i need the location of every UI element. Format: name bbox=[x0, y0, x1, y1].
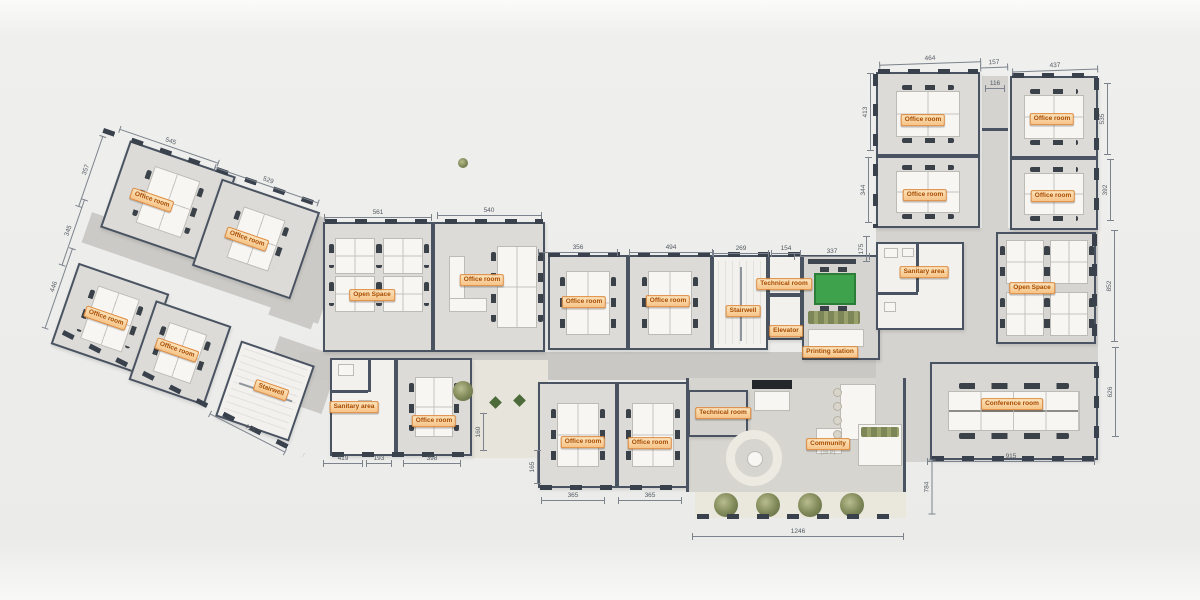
plant-icon bbox=[458, 158, 468, 168]
dimension-line bbox=[927, 461, 1095, 462]
room-label-technical-room: Technical room bbox=[756, 278, 812, 290]
conference-side-floor bbox=[904, 368, 930, 462]
room-label-office-room: Office room bbox=[901, 114, 945, 126]
dimension-561: 561 bbox=[324, 208, 432, 218]
dimension-line bbox=[541, 500, 605, 501]
room-label-office-room: Office room bbox=[628, 437, 672, 449]
dimension-line bbox=[868, 157, 869, 223]
dimension-160: 160 bbox=[474, 413, 484, 451]
dimension-852: 852 bbox=[1105, 230, 1115, 342]
room-label-office-room: Office room bbox=[1031, 190, 1075, 202]
room-conference bbox=[930, 362, 1098, 460]
dimension-value: 852 bbox=[1106, 230, 1113, 342]
dimension-344: 344 bbox=[859, 157, 869, 223]
partition-wall bbox=[368, 360, 371, 392]
mid-corridor-wall bbox=[982, 128, 1008, 131]
desk-cluster bbox=[557, 403, 599, 467]
room-label-office-room: Office room bbox=[460, 274, 504, 286]
room-label-sanitary-area: Sanitary area bbox=[330, 401, 379, 413]
dimension-value: 398 bbox=[403, 455, 461, 462]
dimension-269: 269 bbox=[713, 244, 769, 254]
printer-counter bbox=[808, 329, 864, 347]
dimension-value: 116 bbox=[985, 80, 1005, 87]
room-open-space-center bbox=[323, 222, 433, 352]
room-label-open-space: Open Space bbox=[1009, 282, 1055, 294]
dimension-value: 175 bbox=[858, 236, 865, 262]
tv-screen bbox=[752, 380, 792, 389]
room-label-office-room: Office room bbox=[561, 436, 605, 448]
desk-cluster bbox=[335, 238, 375, 274]
partition-wall bbox=[332, 390, 368, 393]
round-coffee-table bbox=[747, 451, 763, 467]
dimension-165: 165 bbox=[528, 450, 538, 484]
desk-cluster bbox=[383, 238, 423, 274]
reception-desk bbox=[754, 391, 790, 411]
sanitary-fixture bbox=[902, 248, 914, 257]
dimension-line bbox=[618, 500, 682, 501]
dimension-value: 419 bbox=[323, 455, 363, 462]
dimension-line bbox=[1114, 230, 1115, 342]
dimension-value: 413 bbox=[862, 73, 869, 151]
dimension-line bbox=[1110, 159, 1111, 221]
dimension-line bbox=[629, 252, 713, 253]
dimension-value: 784 bbox=[923, 460, 930, 515]
window-strip bbox=[873, 74, 878, 228]
room-sanitary-east bbox=[876, 242, 964, 330]
window-strip bbox=[1012, 73, 1098, 78]
right-wing-mid-corridor bbox=[982, 76, 1008, 228]
dimension-value: 165 bbox=[529, 450, 536, 484]
dimension-784: 784 bbox=[922, 460, 932, 515]
dimension-value: 356 bbox=[538, 244, 618, 251]
stair-rail bbox=[740, 267, 742, 341]
bar-stool bbox=[833, 388, 842, 397]
dimension-value: 1246 bbox=[692, 528, 904, 535]
window-strip bbox=[540, 485, 686, 490]
dimension-356: 356 bbox=[538, 243, 618, 253]
dimension-157: 157 bbox=[980, 58, 1008, 69]
dimension-413: 413 bbox=[861, 73, 871, 151]
dimension-value: 535 bbox=[1099, 83, 1106, 155]
room-office-center-top bbox=[433, 222, 545, 352]
room-label-elevator: Elevator bbox=[769, 325, 803, 337]
dimension-437: 437 bbox=[1012, 60, 1098, 73]
dimension-value: 160 bbox=[475, 413, 482, 451]
dimension-value: 540 bbox=[437, 207, 542, 214]
dimension-value: 915 bbox=[927, 453, 1095, 460]
desk-cluster bbox=[497, 246, 537, 328]
dimension-line bbox=[403, 463, 461, 464]
green-meeting-table bbox=[814, 273, 856, 305]
floor-plan: Office roomOffice roomOffice roomOffice … bbox=[0, 0, 1200, 600]
dimension-value: 626 bbox=[1107, 347, 1114, 437]
sanitary-fixture bbox=[884, 302, 896, 312]
room-stairwell-center bbox=[712, 255, 768, 350]
planter-strip bbox=[861, 427, 899, 437]
community-wall-right bbox=[903, 378, 906, 492]
community-wall-left bbox=[686, 378, 689, 492]
room-label-office-room: Office room bbox=[646, 295, 690, 307]
dimension-line bbox=[537, 450, 538, 484]
dimension-175: 175 bbox=[857, 236, 867, 262]
dimension-value: 561 bbox=[324, 209, 432, 216]
room-office-bottom-1 bbox=[538, 382, 617, 488]
dimension-line bbox=[1107, 83, 1108, 155]
dimension-line bbox=[538, 252, 618, 253]
desk-cluster bbox=[1050, 240, 1088, 284]
conference-table bbox=[948, 391, 1080, 431]
room-label-office-room: Office room bbox=[903, 189, 947, 201]
desk-cluster bbox=[632, 403, 674, 467]
dimension-392: 392 bbox=[1101, 159, 1111, 221]
dimension-193: 193 bbox=[366, 454, 392, 464]
dimension-line bbox=[324, 217, 432, 218]
bar-stool bbox=[833, 416, 842, 425]
room-office-bottom-2 bbox=[617, 382, 688, 488]
dimension-398: 398 bbox=[403, 454, 461, 464]
window-strip bbox=[1094, 366, 1099, 454]
dimension-line bbox=[870, 73, 871, 151]
dimension-1246: 1246 bbox=[692, 527, 904, 537]
room-office-low-west bbox=[396, 358, 472, 456]
dimension-365: 365 bbox=[541, 491, 605, 501]
dimension-535: 535 bbox=[1098, 83, 1108, 155]
window-strip bbox=[325, 219, 543, 224]
dimension-line bbox=[980, 67, 1008, 69]
dimension-line bbox=[985, 88, 1005, 89]
room-label--16-p-: (16 P) bbox=[821, 450, 836, 456]
dimension-626: 626 bbox=[1106, 347, 1116, 437]
room-label-open-space: Open Space bbox=[349, 289, 395, 301]
dimension-line bbox=[931, 460, 932, 515]
dimension-line bbox=[713, 253, 769, 254]
dimension-value: 365 bbox=[541, 492, 605, 499]
dimension-915: 915 bbox=[927, 452, 1095, 462]
dimension-value: 494 bbox=[629, 244, 713, 251]
dimension-value: 157 bbox=[980, 59, 1008, 67]
desk-cluster bbox=[1006, 292, 1044, 336]
dimension-540: 540 bbox=[437, 206, 542, 216]
dimension-116: 116 bbox=[985, 79, 1005, 89]
dimension-line bbox=[366, 463, 392, 464]
room-label-stairwell: Stairwell bbox=[726, 305, 761, 317]
shelf bbox=[808, 259, 856, 264]
window-strip bbox=[878, 69, 978, 74]
bar-stool bbox=[833, 402, 842, 411]
window-strip bbox=[1092, 234, 1097, 342]
dimension-line bbox=[323, 463, 363, 464]
plant-icon bbox=[453, 381, 473, 401]
room-label-printing-station: Printing station bbox=[802, 346, 858, 358]
dimension-line bbox=[437, 215, 542, 216]
dimension-value: 269 bbox=[713, 245, 769, 252]
planter-strip bbox=[808, 311, 860, 324]
desk-cluster bbox=[1006, 240, 1044, 284]
l-desk bbox=[449, 298, 487, 312]
room-label-sanitary-area: Sanitary area bbox=[900, 266, 949, 278]
room-label-office-room: Office room bbox=[412, 415, 456, 427]
room-label-community: Community bbox=[806, 438, 850, 450]
room-label-office-room: Office room bbox=[562, 296, 606, 308]
desk-cluster bbox=[415, 377, 453, 437]
room-label-office-room: Office room bbox=[1030, 113, 1074, 125]
dimension-464: 464 bbox=[879, 52, 981, 66]
dimension-365: 365 bbox=[618, 491, 682, 501]
dimension-line bbox=[1115, 347, 1116, 437]
dimension-494: 494 bbox=[629, 243, 713, 253]
room-label-technical-room: Technical room bbox=[695, 407, 751, 419]
dimension-value: 344 bbox=[860, 157, 867, 223]
dimension-line bbox=[483, 413, 484, 451]
dimension-value: 392 bbox=[1102, 159, 1109, 221]
room-printing-station bbox=[802, 255, 880, 360]
dimension-line bbox=[692, 536, 904, 537]
dimension-line bbox=[866, 236, 867, 262]
partition-wall bbox=[878, 292, 918, 295]
dimension-value: 365 bbox=[618, 492, 682, 499]
desk-cluster bbox=[1050, 292, 1088, 336]
dimension-357: 357 bbox=[69, 133, 103, 207]
window-strip bbox=[697, 514, 904, 519]
sanitary-fixture bbox=[884, 248, 898, 258]
dimension-419: 419 bbox=[323, 454, 363, 464]
room-label-conference-room: Conference room bbox=[981, 398, 1043, 410]
dimension-value: 193 bbox=[366, 455, 392, 462]
sanitary-fixture bbox=[338, 364, 354, 376]
